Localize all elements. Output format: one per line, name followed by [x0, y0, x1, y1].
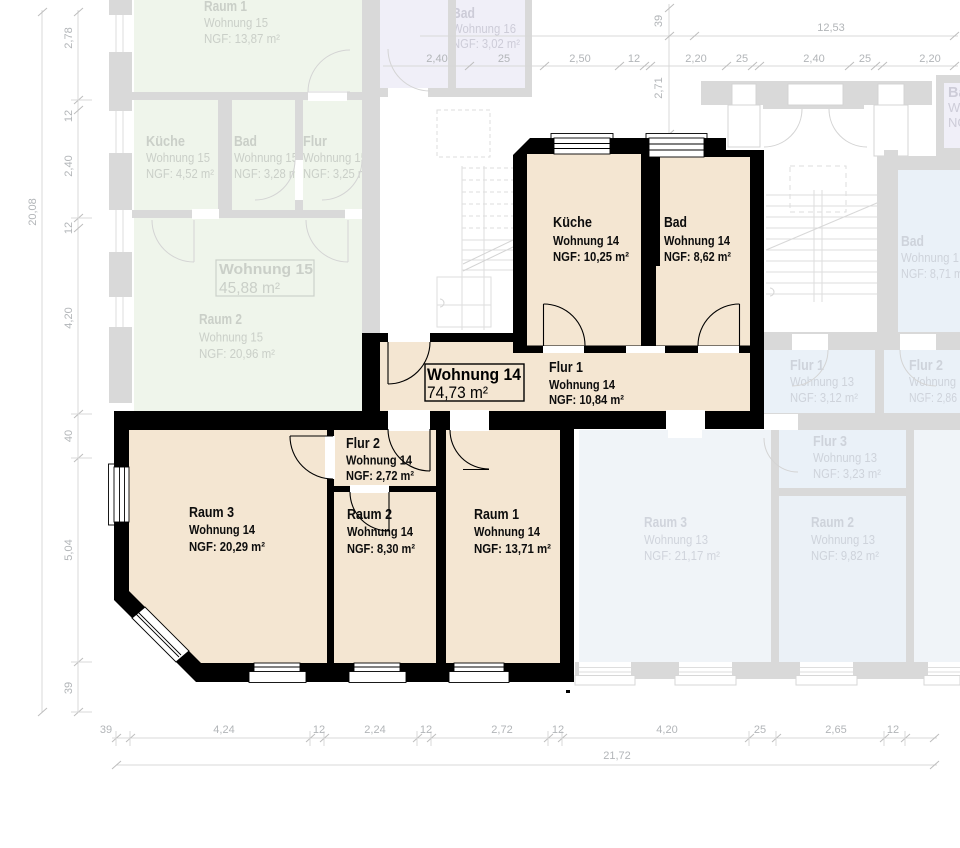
svg-text:NGF: 10,84 m²: NGF: 10,84 m² — [549, 392, 625, 407]
svg-text:Wo: Wo — [948, 100, 960, 115]
svg-text:Flur 1: Flur 1 — [790, 358, 824, 374]
svg-text:Wohnung 14: Wohnung 14 — [549, 377, 616, 392]
svg-text:12: 12 — [313, 724, 325, 736]
svg-text:Wohnung 13: Wohnung 13 — [790, 374, 854, 389]
svg-text:Wohnung 15: Wohnung 15 — [234, 150, 298, 165]
svg-text:Flur 1: Flur 1 — [549, 360, 583, 376]
svg-text:NG: NG — [948, 115, 960, 130]
svg-text:Bad: Bad — [664, 215, 687, 231]
svg-text:Wohnung 13: Wohnung 13 — [813, 450, 877, 465]
svg-text:Flur 2: Flur 2 — [346, 436, 380, 452]
svg-text:NGF: 13,87 m²: NGF: 13,87 m² — [204, 31, 281, 46]
svg-text:2,20: 2,20 — [685, 53, 706, 65]
svg-text:Raum 2: Raum 2 — [811, 515, 854, 531]
svg-text:NGF: 21,17 m²: NGF: 21,17 m² — [644, 548, 721, 563]
svg-text:21,72: 21,72 — [603, 750, 631, 762]
svg-text:Wohnung 13: Wohnung 13 — [811, 532, 875, 547]
svg-text:Wohnung 15: Wohnung 15 — [204, 15, 268, 30]
svg-text:12: 12 — [420, 724, 432, 736]
svg-text:12: 12 — [552, 724, 564, 736]
svg-text:2,78: 2,78 — [63, 27, 75, 48]
svg-text:39: 39 — [653, 15, 665, 27]
svg-text:2,40: 2,40 — [803, 53, 824, 65]
svg-text:NGF: 9,82 m²: NGF: 9,82 m² — [811, 548, 880, 563]
svg-text:2,24: 2,24 — [364, 724, 385, 736]
svg-text:Wohnung 14: Wohnung 14 — [346, 453, 413, 468]
svg-text:NGF: 10,25 m²: NGF: 10,25 m² — [553, 249, 630, 264]
svg-text:25: 25 — [498, 53, 510, 65]
svg-text:Wohnung 15: Wohnung 15 — [199, 330, 263, 345]
svg-text:39: 39 — [100, 724, 112, 736]
svg-text:NGF: 8,62 m²: NGF: 8,62 m² — [664, 249, 732, 264]
svg-text:12,53: 12,53 — [817, 22, 845, 34]
svg-text:Flur: Flur — [303, 134, 327, 150]
svg-text:Flur 3: Flur 3 — [813, 434, 847, 450]
svg-text:45,88 m²: 45,88 m² — [219, 280, 280, 297]
svg-text:Raum 1: Raum 1 — [204, 0, 247, 15]
svg-text:20,08: 20,08 — [27, 198, 39, 226]
svg-text:Küche: Küche — [553, 215, 592, 231]
svg-text:Flur 2: Flur 2 — [909, 358, 943, 374]
svg-text:Wohnung 14: Wohnung 14 — [427, 366, 522, 384]
svg-text:5,04: 5,04 — [63, 539, 75, 560]
svg-text:12: 12 — [63, 110, 75, 122]
svg-text:Wohnung 14: Wohnung 14 — [664, 233, 731, 248]
svg-text:NGF: 13,71 m²: NGF: 13,71 m² — [474, 541, 552, 556]
svg-text:Wohnung 15: Wohnung 15 — [146, 150, 210, 165]
svg-text:2,65: 2,65 — [825, 724, 846, 736]
svg-text:NGF: 3,02 m²: NGF: 3,02 m² — [452, 36, 521, 51]
svg-text:NGF: 2,86: NGF: 2,86 — [909, 390, 957, 405]
svg-text:NGF: 20,96 m²: NGF: 20,96 m² — [199, 346, 276, 361]
svg-text:12: 12 — [628, 53, 640, 65]
svg-text:Raum 2: Raum 2 — [199, 312, 242, 328]
svg-text:NGF: 3,12 m²: NGF: 3,12 m² — [790, 390, 859, 405]
svg-text:Raum 3: Raum 3 — [189, 505, 234, 521]
svg-text:40: 40 — [63, 430, 75, 442]
svg-text:NGF: 3,23 m²: NGF: 3,23 m² — [813, 466, 882, 481]
svg-text:4,20: 4,20 — [63, 307, 75, 328]
svg-text:25: 25 — [754, 724, 766, 736]
svg-text:2,71: 2,71 — [653, 77, 665, 98]
svg-text:2,40: 2,40 — [63, 155, 75, 176]
svg-text:NGF: 20,29 m²: NGF: 20,29 m² — [189, 539, 266, 554]
svg-text:Bad: Bad — [234, 134, 257, 150]
svg-text:Bad: Bad — [901, 234, 924, 250]
svg-text:Wohnung 14: Wohnung 14 — [189, 522, 256, 537]
svg-text:Wohnung 15: Wohnung 15 — [219, 261, 313, 278]
svg-text:39: 39 — [63, 682, 75, 694]
svg-text:Wohnung 16: Wohnung 16 — [452, 21, 516, 36]
svg-text:NGF: 4,52 m²: NGF: 4,52 m² — [146, 166, 215, 181]
svg-text:NGF: 2,72 m²: NGF: 2,72 m² — [346, 468, 415, 483]
svg-text:Wohnung 13: Wohnung 13 — [644, 532, 708, 547]
svg-text:Wohnung: Wohnung — [909, 374, 956, 389]
svg-text:Raum 3: Raum 3 — [644, 515, 687, 531]
svg-text:25: 25 — [859, 53, 871, 65]
svg-text:Wohnung 14: Wohnung 14 — [553, 233, 620, 248]
svg-text:12: 12 — [887, 724, 899, 736]
svg-text:Raum 1: Raum 1 — [474, 507, 519, 523]
svg-text:Ba: Ba — [948, 85, 960, 101]
svg-text:74,73 m²: 74,73 m² — [427, 384, 488, 402]
svg-text:2,72: 2,72 — [491, 724, 512, 736]
svg-text:2,50: 2,50 — [569, 53, 590, 65]
svg-text:Wohnung 15: Wohnung 15 — [303, 150, 367, 165]
svg-text:Wohnung 14: Wohnung 14 — [474, 524, 541, 539]
svg-text:25: 25 — [736, 53, 748, 65]
svg-text:2,20: 2,20 — [919, 53, 940, 65]
svg-text:2,40: 2,40 — [426, 53, 447, 65]
svg-text:4,20: 4,20 — [656, 724, 677, 736]
svg-text:Wohnung 14: Wohnung 14 — [347, 524, 414, 539]
svg-text:12: 12 — [63, 222, 75, 234]
svg-text:NGF: 8,71 m: NGF: 8,71 m — [901, 266, 960, 281]
svg-text:Wohnung 1: Wohnung 1 — [901, 250, 959, 265]
svg-text:4,24: 4,24 — [213, 724, 234, 736]
svg-text:Küche: Küche — [146, 134, 185, 150]
svg-text:NGF: 8,30 m²: NGF: 8,30 m² — [347, 541, 416, 556]
